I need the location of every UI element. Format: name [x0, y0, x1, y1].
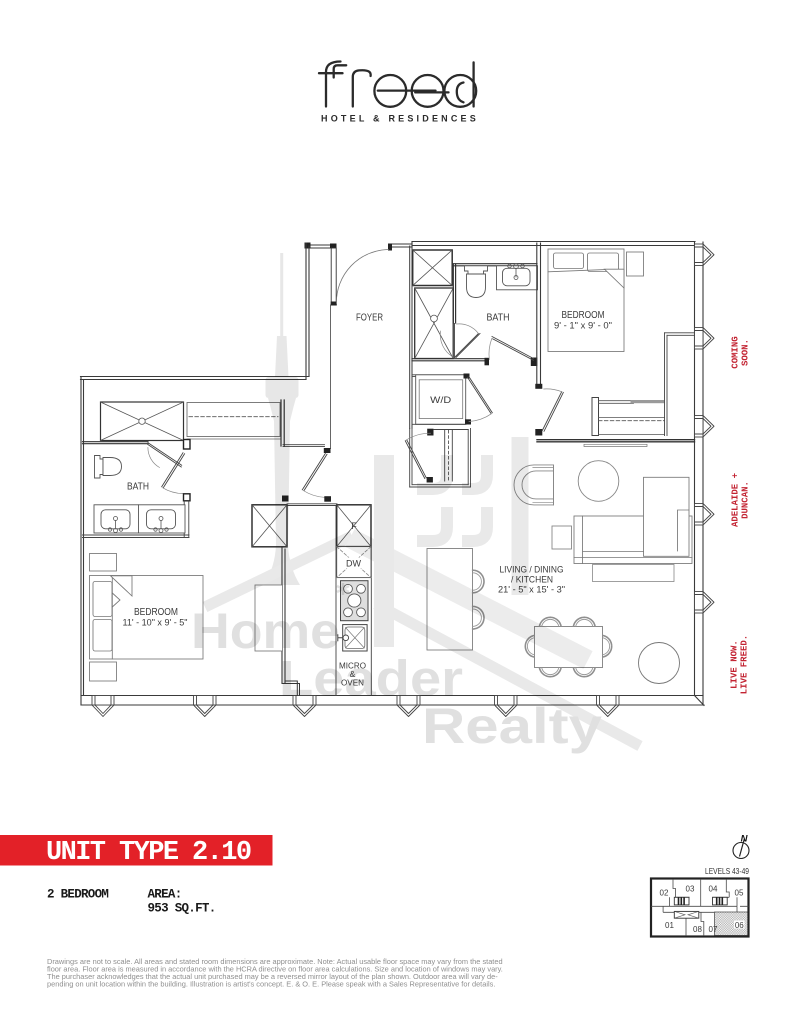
svg-text:DUNCAN.: DUNCAN.	[741, 481, 751, 519]
svg-text:COMING: COMING	[731, 336, 741, 368]
svg-text:2 BEDROOM: 2 BEDROOM	[47, 888, 108, 902]
svg-text:W/D: W/D	[430, 395, 451, 406]
svg-text:AREA:: AREA:	[148, 888, 182, 902]
svg-text:03: 03	[686, 885, 695, 894]
svg-text:BATH: BATH	[487, 313, 510, 324]
svg-text:N: N	[741, 834, 749, 845]
svg-text:pending on unit location withi: pending on unit location within the buil…	[47, 980, 495, 989]
svg-text:06: 06	[735, 921, 744, 930]
svg-text:08: 08	[693, 925, 702, 934]
svg-text:HOTEL & RESIDENCES: HOTEL & RESIDENCES	[321, 114, 479, 124]
svg-text:LIVE FREED.: LIVE FREED.	[740, 635, 750, 694]
svg-text:ADELAIDE +: ADELAIDE +	[731, 473, 741, 527]
svg-text:02: 02	[660, 889, 669, 898]
svg-text:DW: DW	[346, 559, 361, 569]
svg-text:BEDROOM: BEDROOM	[562, 310, 605, 321]
svg-text:Realty: Realty	[422, 698, 602, 754]
svg-text:F: F	[351, 521, 357, 531]
svg-text:11' - 10" x 9' - 5": 11' - 10" x 9' - 5"	[123, 618, 188, 629]
svg-text:LEVELS 43-49: LEVELS 43-49	[705, 867, 749, 876]
svg-text:953 SQ.FT.: 953 SQ.FT.	[148, 902, 216, 916]
svg-text:04: 04	[709, 885, 718, 894]
svg-text:UNIT TYPE 2.10: UNIT TYPE 2.10	[46, 838, 251, 868]
svg-text:07: 07	[709, 925, 718, 934]
svg-text:05: 05	[735, 889, 744, 898]
svg-text:SOON.: SOON.	[741, 339, 751, 366]
svg-text:21' - 5" x 15' - 3": 21' - 5" x 15' - 3"	[498, 585, 565, 596]
svg-text:9' - 1" x 9' - 0": 9' - 1" x 9' - 0"	[554, 321, 612, 332]
svg-text:FOYER: FOYER	[356, 313, 383, 324]
svg-text:BEDROOM: BEDROOM	[134, 607, 178, 618]
svg-text:01: 01	[665, 921, 674, 930]
svg-text:BATH: BATH	[127, 482, 149, 493]
svg-text:LIVE NOW.: LIVE NOW.	[730, 640, 740, 689]
